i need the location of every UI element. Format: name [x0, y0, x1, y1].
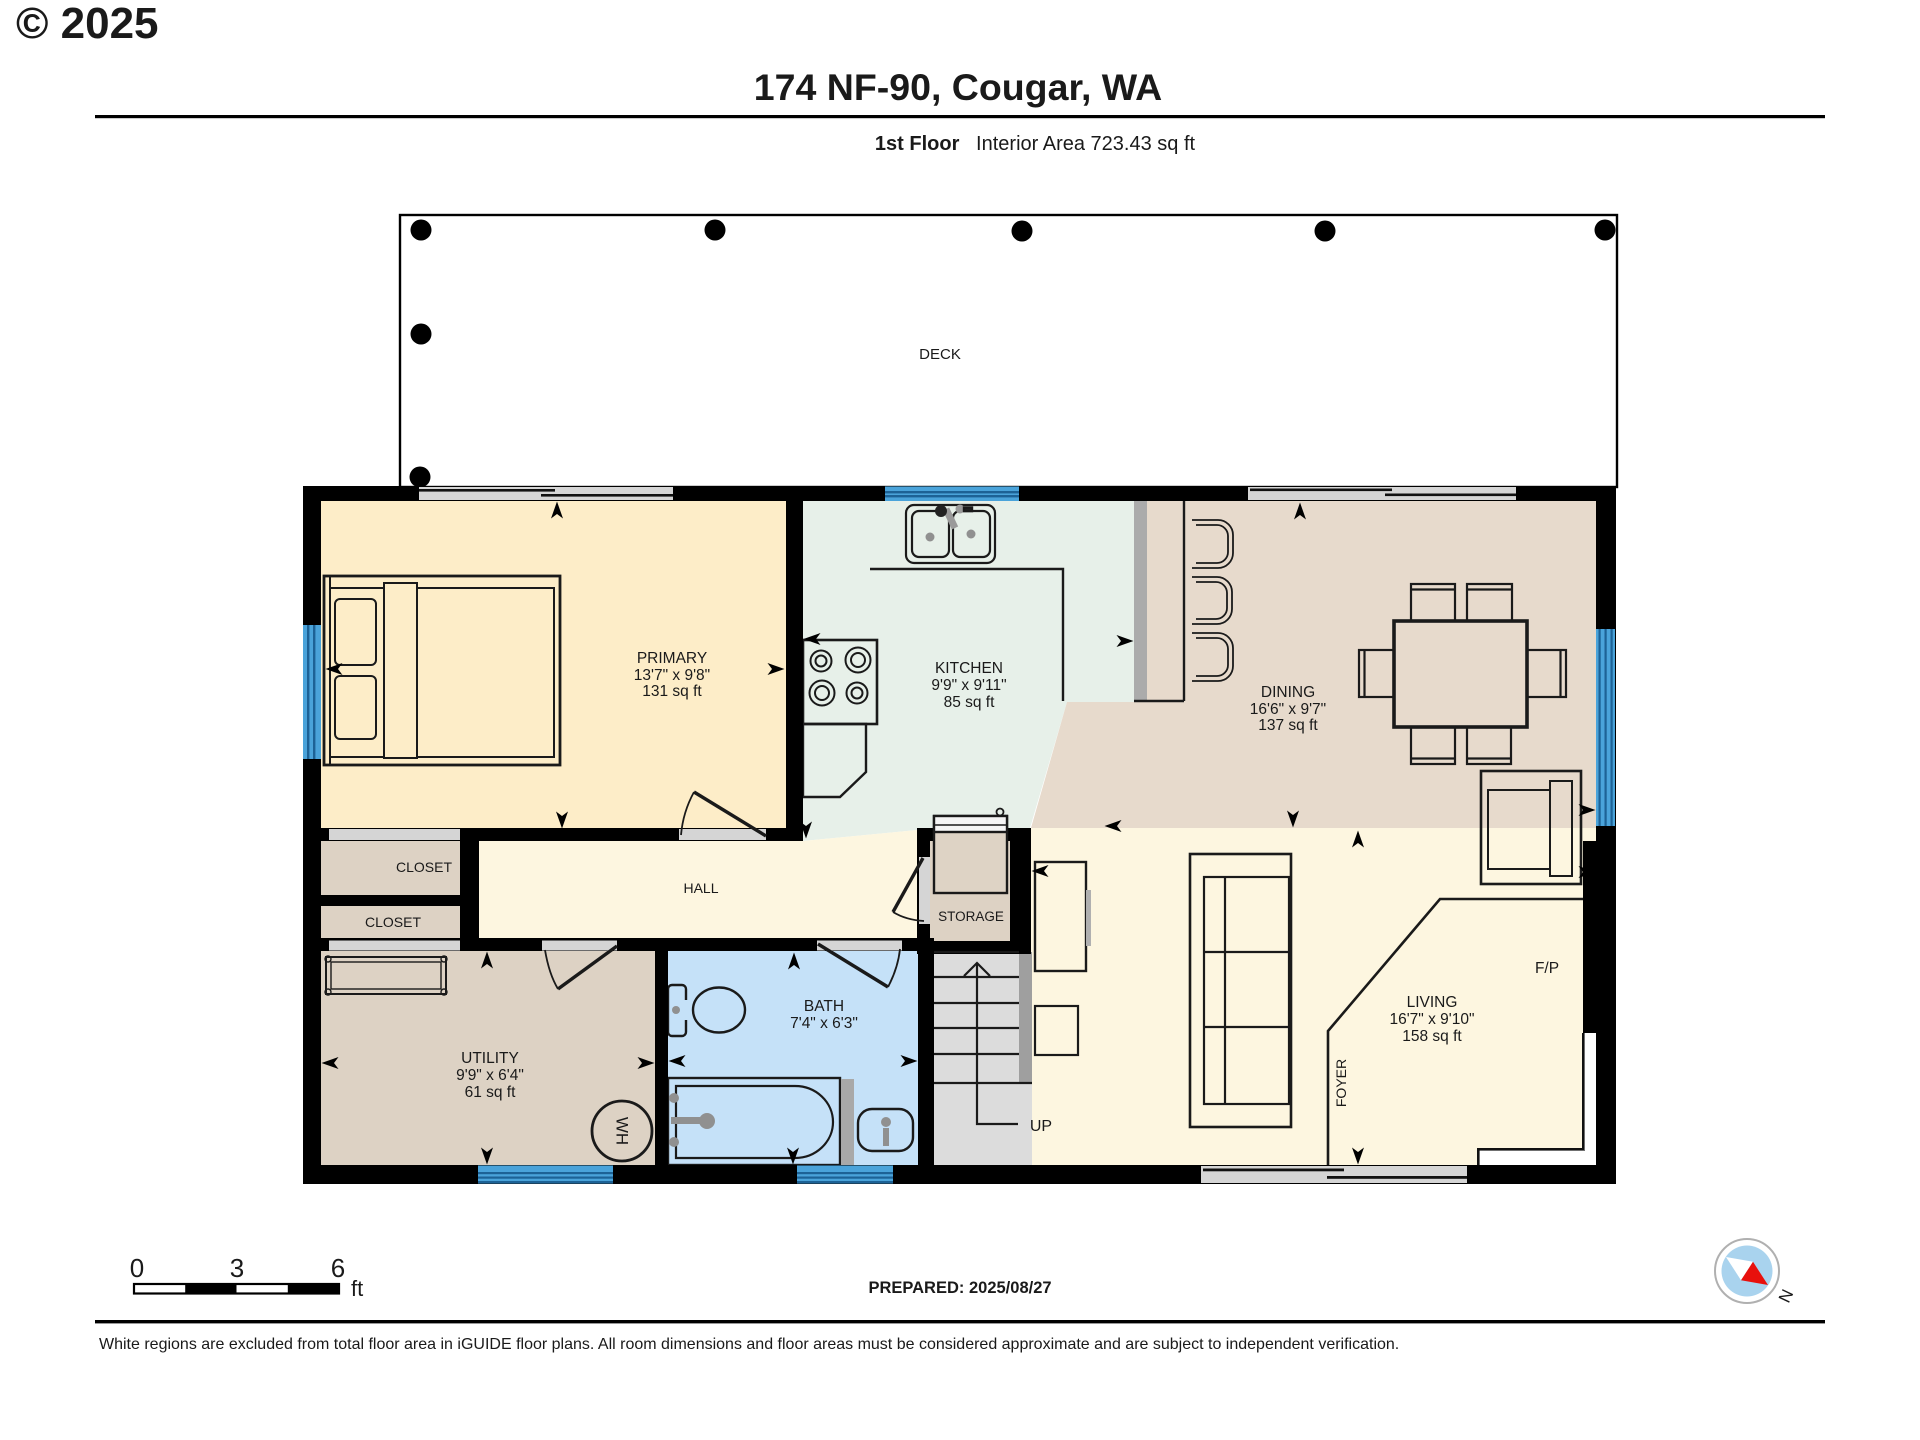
svg-text:6: 6	[331, 1253, 345, 1283]
svg-text:ft: ft	[351, 1276, 363, 1301]
svg-text:13'7" x 9'8": 13'7" x 9'8"	[634, 667, 710, 684]
svg-text:9'9" x 9'11": 9'9" x 9'11"	[931, 677, 1006, 694]
svg-text:STORAGE: STORAGE	[938, 909, 1004, 924]
svg-text:PREPARED: 2025/08/27: PREPARED: 2025/08/27	[868, 1279, 1051, 1297]
svg-text:KITCHEN: KITCHEN	[935, 660, 1003, 677]
svg-text:UP: UP	[1030, 1118, 1052, 1135]
svg-text:LIVING: LIVING	[1407, 994, 1458, 1011]
svg-text:0: 0	[130, 1253, 144, 1283]
svg-text:1st Floor Interior Area 723.: 1st Floor Interior Area 723.43 sq ft	[875, 133, 1196, 155]
svg-text:131 sq ft: 131 sq ft	[642, 683, 702, 700]
svg-text:F/P: F/P	[1535, 960, 1559, 977]
svg-text:3: 3	[230, 1253, 244, 1283]
svg-text:9'9" x 6'4": 9'9" x 6'4"	[456, 1067, 524, 1084]
svg-text:WH: WH	[613, 1117, 632, 1145]
svg-text:85 sq ft: 85 sq ft	[944, 694, 996, 711]
svg-text:DECK: DECK	[919, 346, 961, 363]
svg-text:DINING: DINING	[1261, 684, 1315, 701]
svg-text:White regions are excluded fro: White regions are excluded from total fl…	[99, 1336, 1399, 1353]
svg-text:PRIMARY: PRIMARY	[637, 650, 707, 667]
svg-text:16'6" x 9'7": 16'6" x 9'7"	[1250, 701, 1326, 718]
svg-text:7'4" x 6'3": 7'4" x 6'3"	[790, 1015, 858, 1032]
svg-text:HALL: HALL	[683, 880, 718, 896]
svg-text:158 sq ft: 158 sq ft	[1402, 1028, 1462, 1045]
svg-text:BATH: BATH	[804, 998, 844, 1015]
svg-text:16'7" x 9'10": 16'7" x 9'10"	[1389, 1011, 1474, 1028]
svg-text:174 NF-90, Cougar, WA: 174 NF-90, Cougar, WA	[754, 66, 1162, 108]
svg-text:© 2025: © 2025	[16, 0, 159, 48]
svg-text:UTILITY: UTILITY	[461, 1050, 519, 1067]
svg-text:137 sq ft: 137 sq ft	[1258, 717, 1318, 734]
svg-text:CLOSET: CLOSET	[396, 859, 452, 875]
svg-text:61 sq ft: 61 sq ft	[465, 1084, 517, 1101]
svg-text:CLOSET: CLOSET	[365, 914, 421, 930]
svg-text:FOYER: FOYER	[1333, 1059, 1349, 1107]
